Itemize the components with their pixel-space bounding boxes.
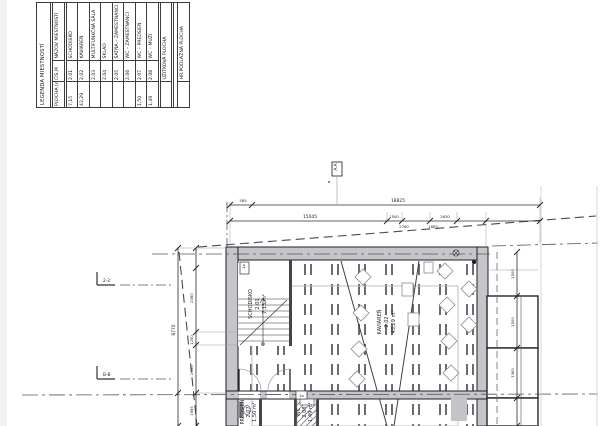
svg-text:PREDSIEŇ: PREDSIEŇ: [239, 399, 246, 424]
svg-text:43,29 m²: 43,29 m²: [391, 311, 397, 334]
dim-right-3: 1365: [510, 368, 515, 378]
column-dot: [472, 260, 476, 264]
dim-mid-main: 15045: [303, 214, 317, 220]
svg-text:1a: 1a: [242, 264, 246, 269]
svg-text:2a: 2a: [299, 394, 304, 398]
section-marker-label: B-B: [103, 372, 110, 378]
stair-divider-wall: [289, 260, 292, 346]
room-label-predsien: PREDSIEŇ 2.07 1,50 m²: [239, 399, 258, 424]
dim-right-1: 1500: [510, 269, 515, 279]
bottom-wall: [226, 391, 488, 399]
section-marker-left-upper: 2-2: [97, 272, 115, 285]
frame-lines: [541, 186, 597, 426]
section-marker-label: 2-2: [103, 278, 110, 284]
counter-furniture: [451, 396, 467, 421]
svg-text:1,49 m²: 1,49 m²: [308, 402, 314, 422]
svg-text:KAVIAREŇ: KAVIAREŇ: [376, 309, 383, 334]
exterior-panels: [487, 296, 538, 426]
dim-mid-below: 1885: [428, 224, 438, 229]
dim-mid-below: 2760: [399, 224, 409, 229]
dim-right-2: 1500: [510, 317, 515, 327]
dim-left-3: 2430: [189, 365, 194, 375]
dim-left-4: 1985: [189, 406, 194, 416]
dim-top-left: 585: [239, 198, 247, 203]
svg-text:2.01: 2.01: [255, 298, 261, 309]
svg-text:2.02: 2.02: [384, 316, 390, 327]
svg-text:1,50 m²: 1,50 m²: [252, 402, 258, 422]
section-marker-left-lower: B-B: [97, 366, 115, 379]
dim-mid-above: 1500: [389, 214, 399, 219]
section-marker-top-label: A.A: [333, 163, 339, 170]
wall-tag-2: 2a: [296, 391, 307, 399]
svg-text:7,15 m²: 7,15 m²: [262, 294, 268, 314]
dim-top-overall: 18825: [391, 198, 405, 204]
wall-symbol: [453, 250, 459, 256]
drawing-canvas: LEGENDA MIESTNOSTÍ PLOCHA [m²] ČÍS.M NÁZ…: [0, 0, 600, 426]
section-marker-top: A.A: [328, 162, 342, 204]
dim-mid-above: 2630: [440, 214, 450, 219]
svg-text:SCHODISKO: SCHODISKO: [248, 289, 254, 319]
dim-left-1: 2080: [189, 293, 194, 303]
floor-plan-svg: 18825 585 15045 1500 2630 2760 1885 8770…: [0, 0, 600, 426]
dim-left-2: 1250: [189, 335, 194, 345]
dim-left-outer: 8770: [171, 324, 177, 335]
wall-tag-1: 1a: [240, 262, 249, 274]
top-wall: [226, 247, 487, 260]
